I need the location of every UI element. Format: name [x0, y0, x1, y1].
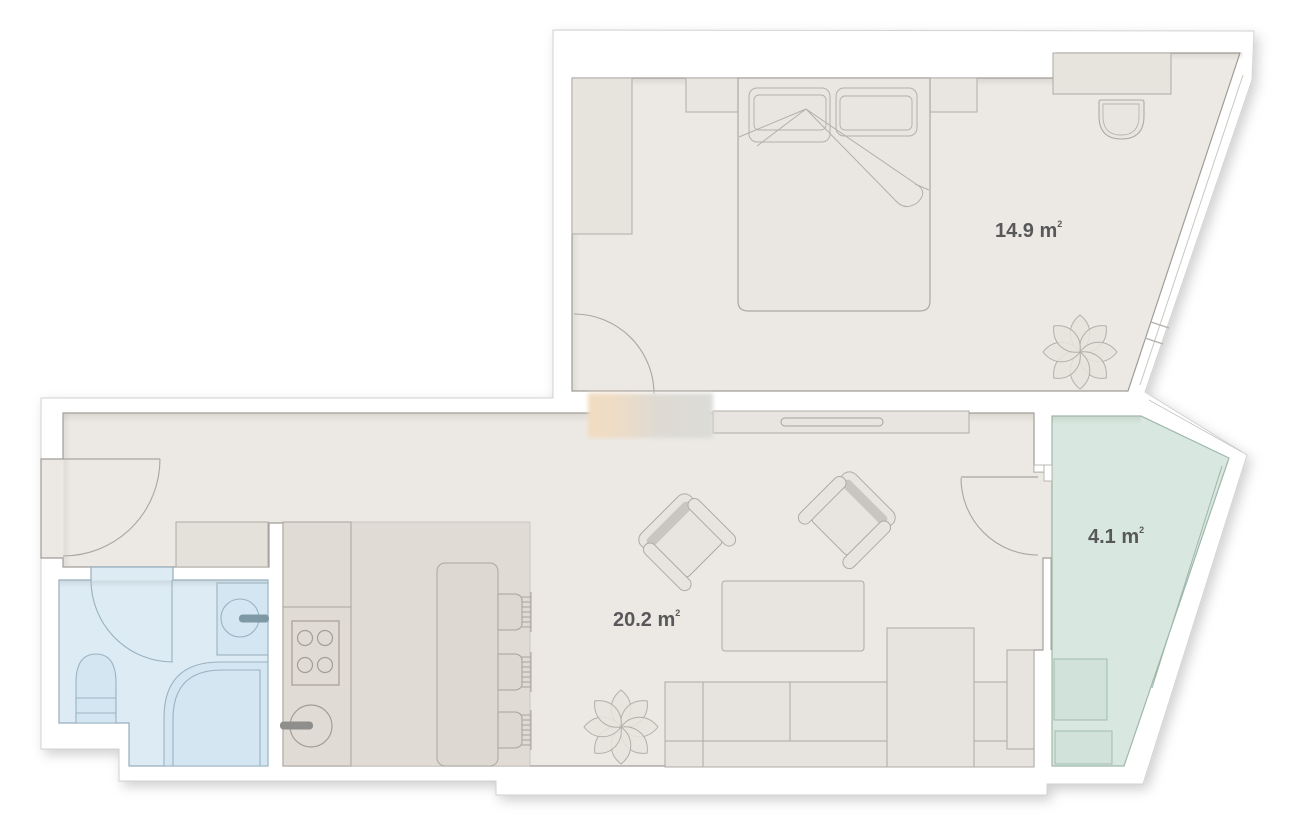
svg-text:20.2 m2: 20.2 m2 [613, 608, 680, 631]
svg-text:4.1 m2: 4.1 m2 [1088, 525, 1144, 548]
svg-text:14.9 m2: 14.9 m2 [995, 219, 1062, 242]
